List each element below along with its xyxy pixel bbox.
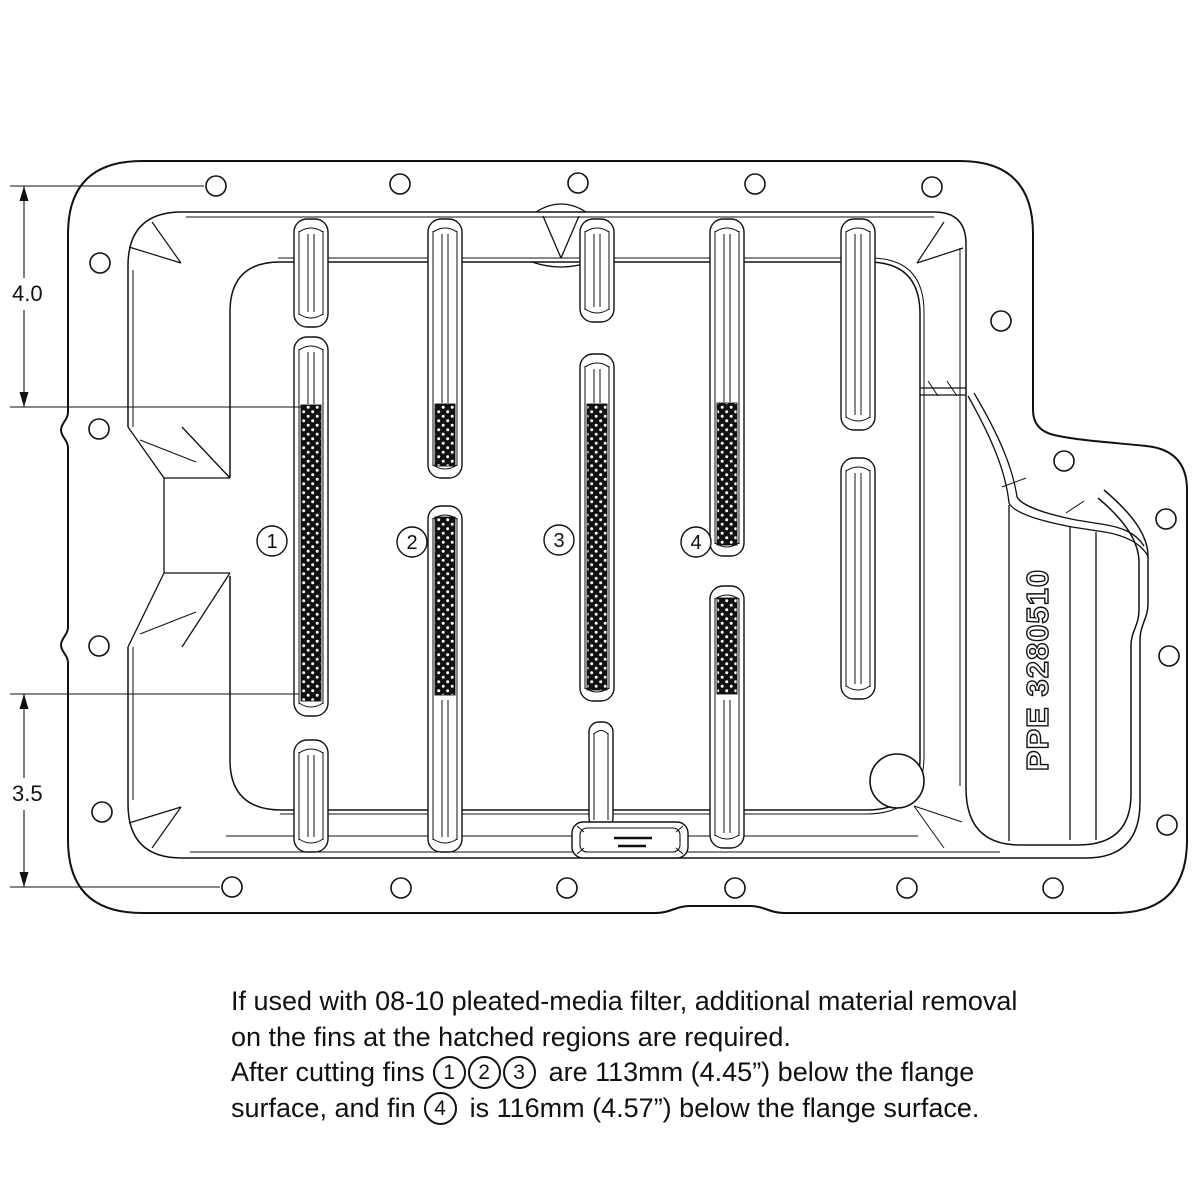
note-text: on the fins at the hatched regions are r… [231, 1020, 791, 1056]
bolt-hole [1159, 646, 1179, 666]
outer-flange-outline [61, 161, 1187, 913]
fin-column-4 [710, 219, 744, 848]
inline-callout-1: 1 [433, 1056, 466, 1089]
arrowhead-down [20, 392, 29, 407]
fin-callout-numbers: 1 2 3 4 [266, 530, 701, 554]
hatch-region-fin-3 [587, 404, 607, 690]
left-indent-feature [128, 427, 230, 647]
part-number-text: PPE 3280510 [1020, 569, 1055, 771]
note-text: is 116mm (4.57”) below the flange surfac… [470, 1091, 980, 1127]
hatch-region-fin-4-upper [717, 403, 737, 545]
bolt-hole [1043, 878, 1063, 898]
inline-callout-2: 2 [468, 1056, 501, 1089]
callout-number-3: 3 [553, 530, 564, 552]
technical-drawing-page: PPE 3280510 1 2 3 4 [0, 0, 1200, 1200]
callout-number-2: 2 [406, 532, 417, 554]
dim-upper-label: 4.0 [12, 281, 43, 306]
notes-block: If used with 08-10 pleated-media filter,… [231, 984, 1017, 1126]
bolt-hole [92, 802, 112, 822]
arrowhead-up [20, 186, 29, 201]
bolt-hole [922, 177, 942, 197]
bolt-hole [222, 877, 242, 897]
bolt-hole [1157, 815, 1177, 835]
pan-floor-outline [226, 258, 924, 836]
bolt-hole [90, 253, 110, 273]
note-text: After cutting fins [231, 1055, 425, 1091]
callout-number-1: 1 [266, 531, 277, 553]
bolt-hole [391, 878, 411, 898]
arrowhead-down [20, 872, 29, 887]
bolt-hole [390, 174, 410, 194]
transmission-pan-drawing: PPE 3280510 1 2 3 4 [0, 0, 1200, 980]
hatch-region-fin-4-lower [717, 598, 737, 694]
bolt-hole [89, 636, 109, 656]
bolt-hole [991, 311, 1011, 331]
fin-column-5 [841, 219, 875, 699]
note-text: If used with 08-10 pleated-media filter,… [231, 984, 1017, 1020]
inline-callout-4: 4 [424, 1092, 457, 1125]
arrowhead-up [20, 694, 29, 709]
bolt-hole [568, 173, 588, 193]
bolt-hole [89, 419, 109, 439]
inline-callout-3: 3 [503, 1056, 536, 1089]
bolt-hole [745, 174, 765, 194]
hatch-region-fin-2-lower [435, 517, 455, 695]
note-line-4: surface, and fin4is 116mm (4.57”) below … [231, 1091, 1017, 1127]
fin-column-3 [580, 219, 614, 701]
fin-column-1 [294, 219, 328, 852]
note-line-1: If used with 08-10 pleated-media filter,… [231, 984, 1017, 1020]
fin-column-2 [428, 219, 462, 852]
bolt-hole [206, 176, 226, 196]
hatch-region-fin-2-upper [435, 404, 455, 466]
bolt-hole [725, 878, 745, 898]
note-line-3: After cutting fins123are 113mm (4.45”) b… [231, 1055, 1017, 1091]
bolt-hole [557, 878, 577, 898]
drain-boss [572, 722, 688, 858]
dimension-upper [10, 186, 301, 407]
note-line-2: on the fins at the hatched regions are r… [231, 1020, 1017, 1056]
bolt-hole [1156, 509, 1176, 529]
dim-lower-label: 3.5 [12, 781, 43, 806]
bolt-hole [897, 878, 917, 898]
bolt-holes [89, 173, 1179, 898]
callout-number-4: 4 [690, 532, 701, 554]
note-text: are 113mm (4.45”) below the flange [549, 1055, 975, 1091]
hatch-region-fin-1 [301, 405, 321, 701]
bolt-hole [1054, 451, 1074, 471]
drain-plug-circle [870, 754, 924, 808]
note-text: surface, and fin [231, 1091, 416, 1127]
